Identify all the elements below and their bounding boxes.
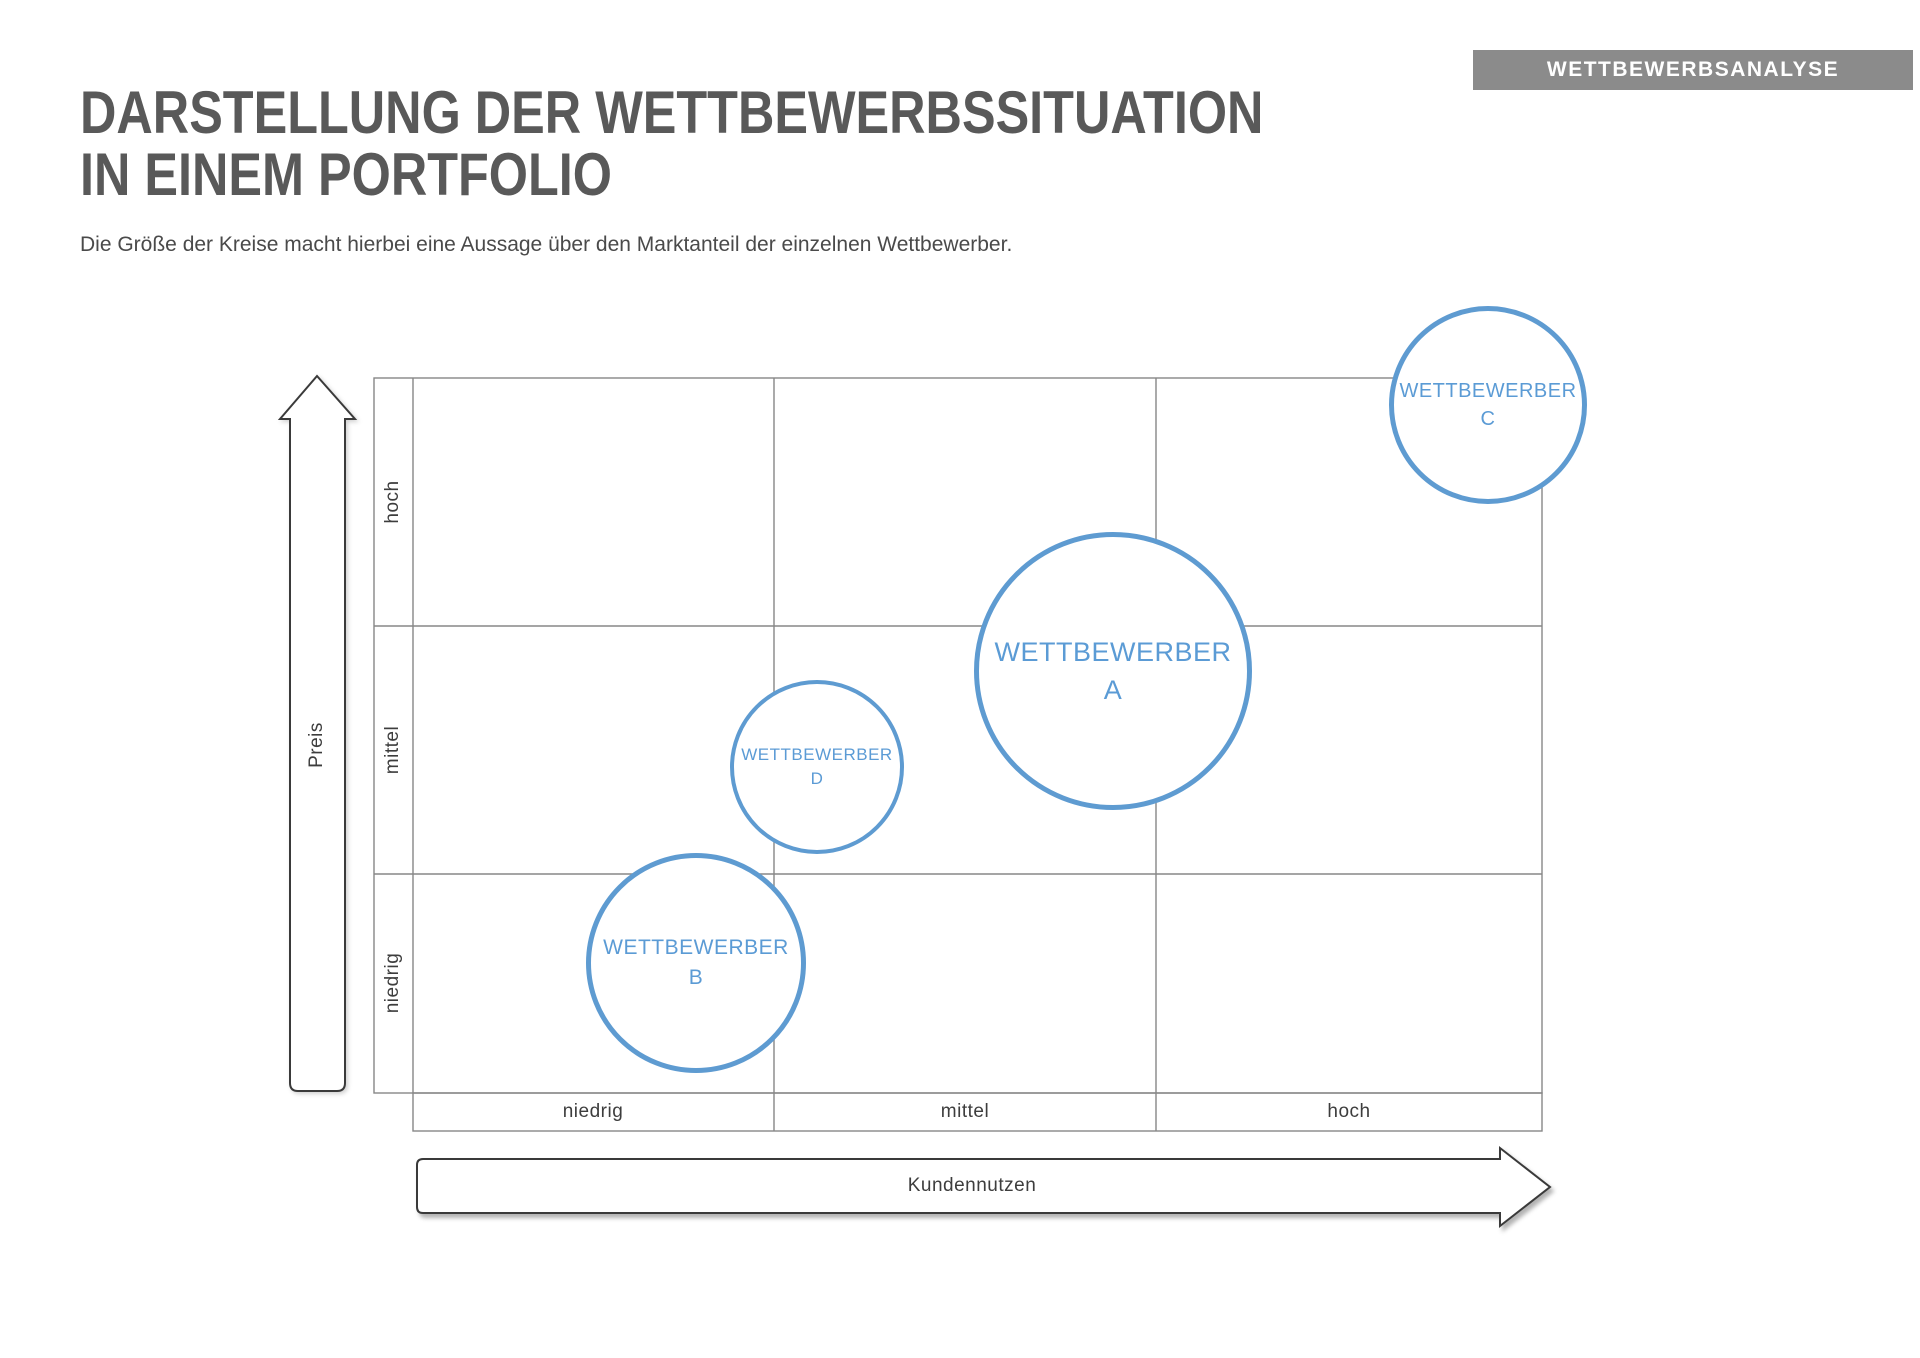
bubble-letter-label: C bbox=[1481, 405, 1496, 433]
bubble-wettbewerber-b: WETTBEWERBERB bbox=[586, 853, 806, 1073]
bubble-company-label: WETTBEWERBER bbox=[1399, 377, 1576, 405]
bubbles-layer: WETTBEWERBERAWETTBEWERBERBWETTBEWERBERCW… bbox=[0, 0, 1920, 1358]
bubble-wettbewerber-c: WETTBEWERBERC bbox=[1389, 306, 1587, 504]
bubble-company-label: WETTBEWERBER bbox=[603, 933, 789, 963]
bubble-letter-label: B bbox=[689, 963, 704, 993]
bubble-letter-label: A bbox=[1104, 671, 1123, 709]
bubble-company-label: WETTBEWERBER bbox=[741, 743, 892, 767]
bubble-company-label: WETTBEWERBER bbox=[994, 633, 1231, 671]
bubble-wettbewerber-d: WETTBEWERBERD bbox=[730, 680, 904, 854]
bubble-wettbewerber-a: WETTBEWERBERA bbox=[974, 532, 1252, 810]
slide: WETTBEWERBSANALYSE DARSTELLUNG DER WETTB… bbox=[0, 0, 1920, 1358]
bubble-letter-label: D bbox=[811, 767, 824, 791]
